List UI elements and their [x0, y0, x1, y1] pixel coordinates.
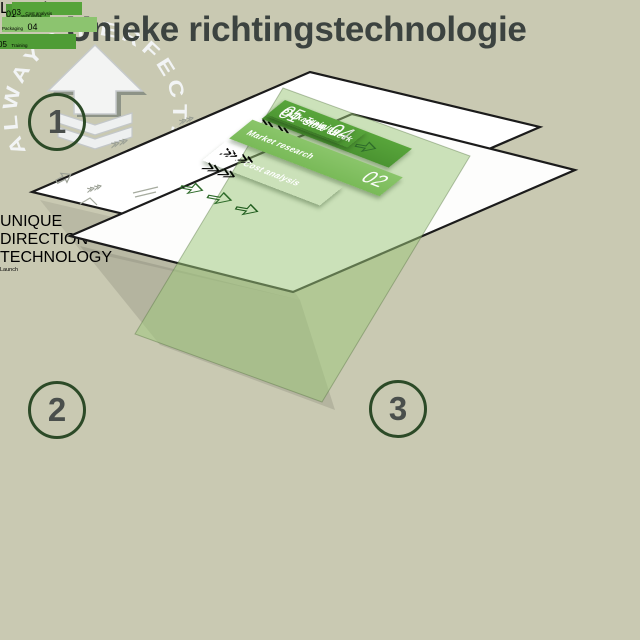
panel-number: 02	[354, 168, 393, 192]
infographic-canvas: Unieke richtingstechnologie 1 ≫≫ ≫≫ ≫≫ 0…	[0, 0, 640, 640]
step-1-sheets-art	[0, 0, 640, 640]
